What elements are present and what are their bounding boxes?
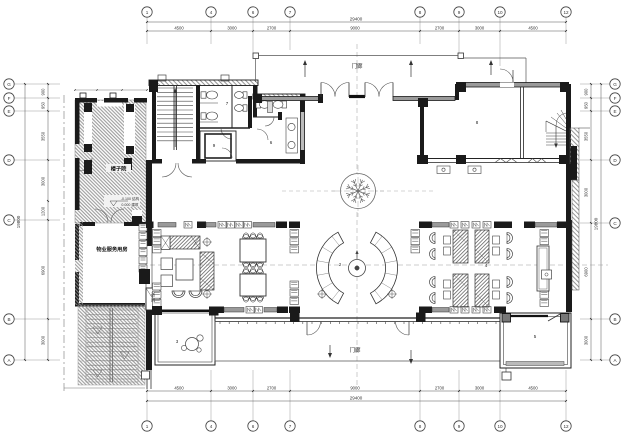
svg-text:G: G bbox=[7, 82, 11, 87]
svg-text:4: 4 bbox=[210, 424, 213, 429]
svg-text:B: B bbox=[613, 317, 616, 322]
svg-text:2700: 2700 bbox=[435, 386, 445, 391]
svg-text:950: 950 bbox=[584, 101, 589, 109]
svg-text:10: 10 bbox=[497, 424, 503, 429]
svg-text:0.000 建筑: 0.000 建筑 bbox=[121, 202, 139, 207]
svg-text:3550: 3550 bbox=[584, 131, 589, 141]
svg-text:3000: 3000 bbox=[475, 386, 485, 391]
svg-text:3000: 3000 bbox=[584, 187, 589, 197]
svg-text:8: 8 bbox=[419, 10, 422, 15]
svg-text:3550: 3550 bbox=[41, 131, 46, 141]
svg-text:1200: 1200 bbox=[41, 206, 46, 216]
svg-text:2700: 2700 bbox=[435, 26, 445, 31]
svg-text:4500: 4500 bbox=[174, 26, 184, 31]
svg-text:楼子院: 楼子院 bbox=[111, 165, 127, 173]
svg-text:门廊: 门廊 bbox=[351, 62, 363, 70]
svg-text:物业服务用房: 物业服务用房 bbox=[96, 245, 127, 253]
svg-text:3000: 3000 bbox=[584, 335, 589, 345]
svg-text:门廊: 门廊 bbox=[349, 346, 361, 354]
svg-text:29400: 29400 bbox=[350, 17, 363, 22]
svg-text:B: B bbox=[7, 317, 10, 322]
svg-text:900: 900 bbox=[41, 88, 46, 96]
svg-text:29400: 29400 bbox=[350, 396, 363, 401]
svg-text:6: 6 bbox=[252, 10, 255, 15]
svg-text:9000: 9000 bbox=[350, 26, 360, 31]
svg-text:12: 12 bbox=[563, 10, 569, 15]
svg-text:9: 9 bbox=[458, 10, 461, 15]
svg-text:7: 7 bbox=[289, 424, 292, 429]
svg-text:19800: 19800 bbox=[594, 217, 599, 230]
svg-text:9: 9 bbox=[458, 424, 461, 429]
svg-text:G: G bbox=[613, 82, 617, 87]
svg-text:2700: 2700 bbox=[267, 386, 277, 391]
svg-text:1: 1 bbox=[146, 10, 149, 15]
svg-text:6900: 6900 bbox=[41, 265, 46, 275]
svg-text:F: F bbox=[614, 96, 617, 101]
svg-text:19800: 19800 bbox=[16, 215, 21, 228]
svg-text:9000: 9000 bbox=[350, 386, 360, 391]
svg-text:E: E bbox=[7, 109, 10, 114]
svg-text:-0.100 结构: -0.100 结构 bbox=[121, 196, 140, 201]
svg-text:3000: 3000 bbox=[227, 26, 237, 31]
svg-text:7: 7 bbox=[289, 10, 292, 15]
svg-text:4500: 4500 bbox=[528, 386, 538, 391]
svg-text:E: E bbox=[613, 109, 616, 114]
svg-text:2700: 2700 bbox=[267, 26, 277, 31]
svg-text:1: 1 bbox=[146, 424, 149, 429]
svg-text:4500: 4500 bbox=[174, 386, 184, 391]
svg-text:6: 6 bbox=[252, 424, 255, 429]
svg-text:F: F bbox=[8, 96, 11, 101]
svg-text:900: 900 bbox=[584, 88, 589, 96]
svg-text:12: 12 bbox=[563, 424, 569, 429]
svg-text:950: 950 bbox=[41, 101, 46, 109]
svg-text:3000: 3000 bbox=[41, 335, 46, 345]
svg-text:3000: 3000 bbox=[227, 386, 237, 391]
svg-text:6900: 6900 bbox=[584, 267, 589, 277]
svg-text:10: 10 bbox=[497, 10, 503, 15]
svg-text:4500: 4500 bbox=[528, 26, 538, 31]
svg-text:4: 4 bbox=[210, 10, 213, 15]
svg-text:3000: 3000 bbox=[475, 26, 485, 31]
svg-text:8: 8 bbox=[419, 424, 422, 429]
svg-text:3000: 3000 bbox=[41, 176, 46, 186]
